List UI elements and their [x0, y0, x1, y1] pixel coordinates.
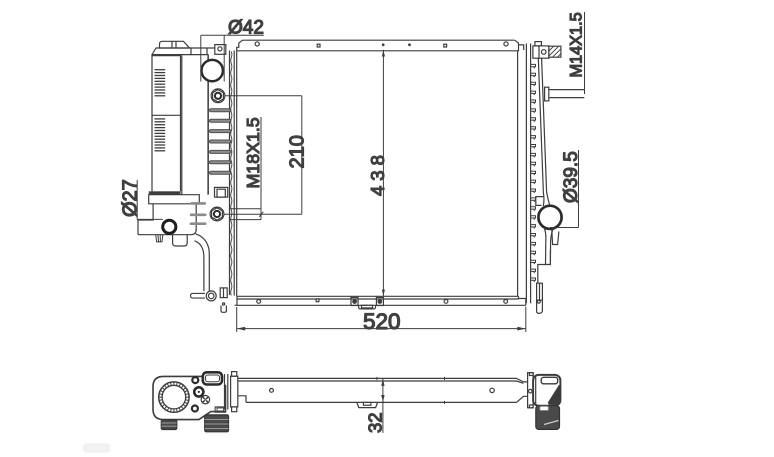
svg-text:32: 32 — [365, 412, 386, 433]
svg-text:438: 438 — [367, 150, 388, 196]
svg-text:Ø27: Ø27 — [120, 179, 142, 217]
svg-text:520: 520 — [363, 309, 401, 334]
svg-text:210: 210 — [287, 135, 309, 168]
svg-text:M14X1.5: M14X1.5 — [568, 12, 586, 77]
svg-text:M18X1.5: M18X1.5 — [243, 117, 263, 188]
